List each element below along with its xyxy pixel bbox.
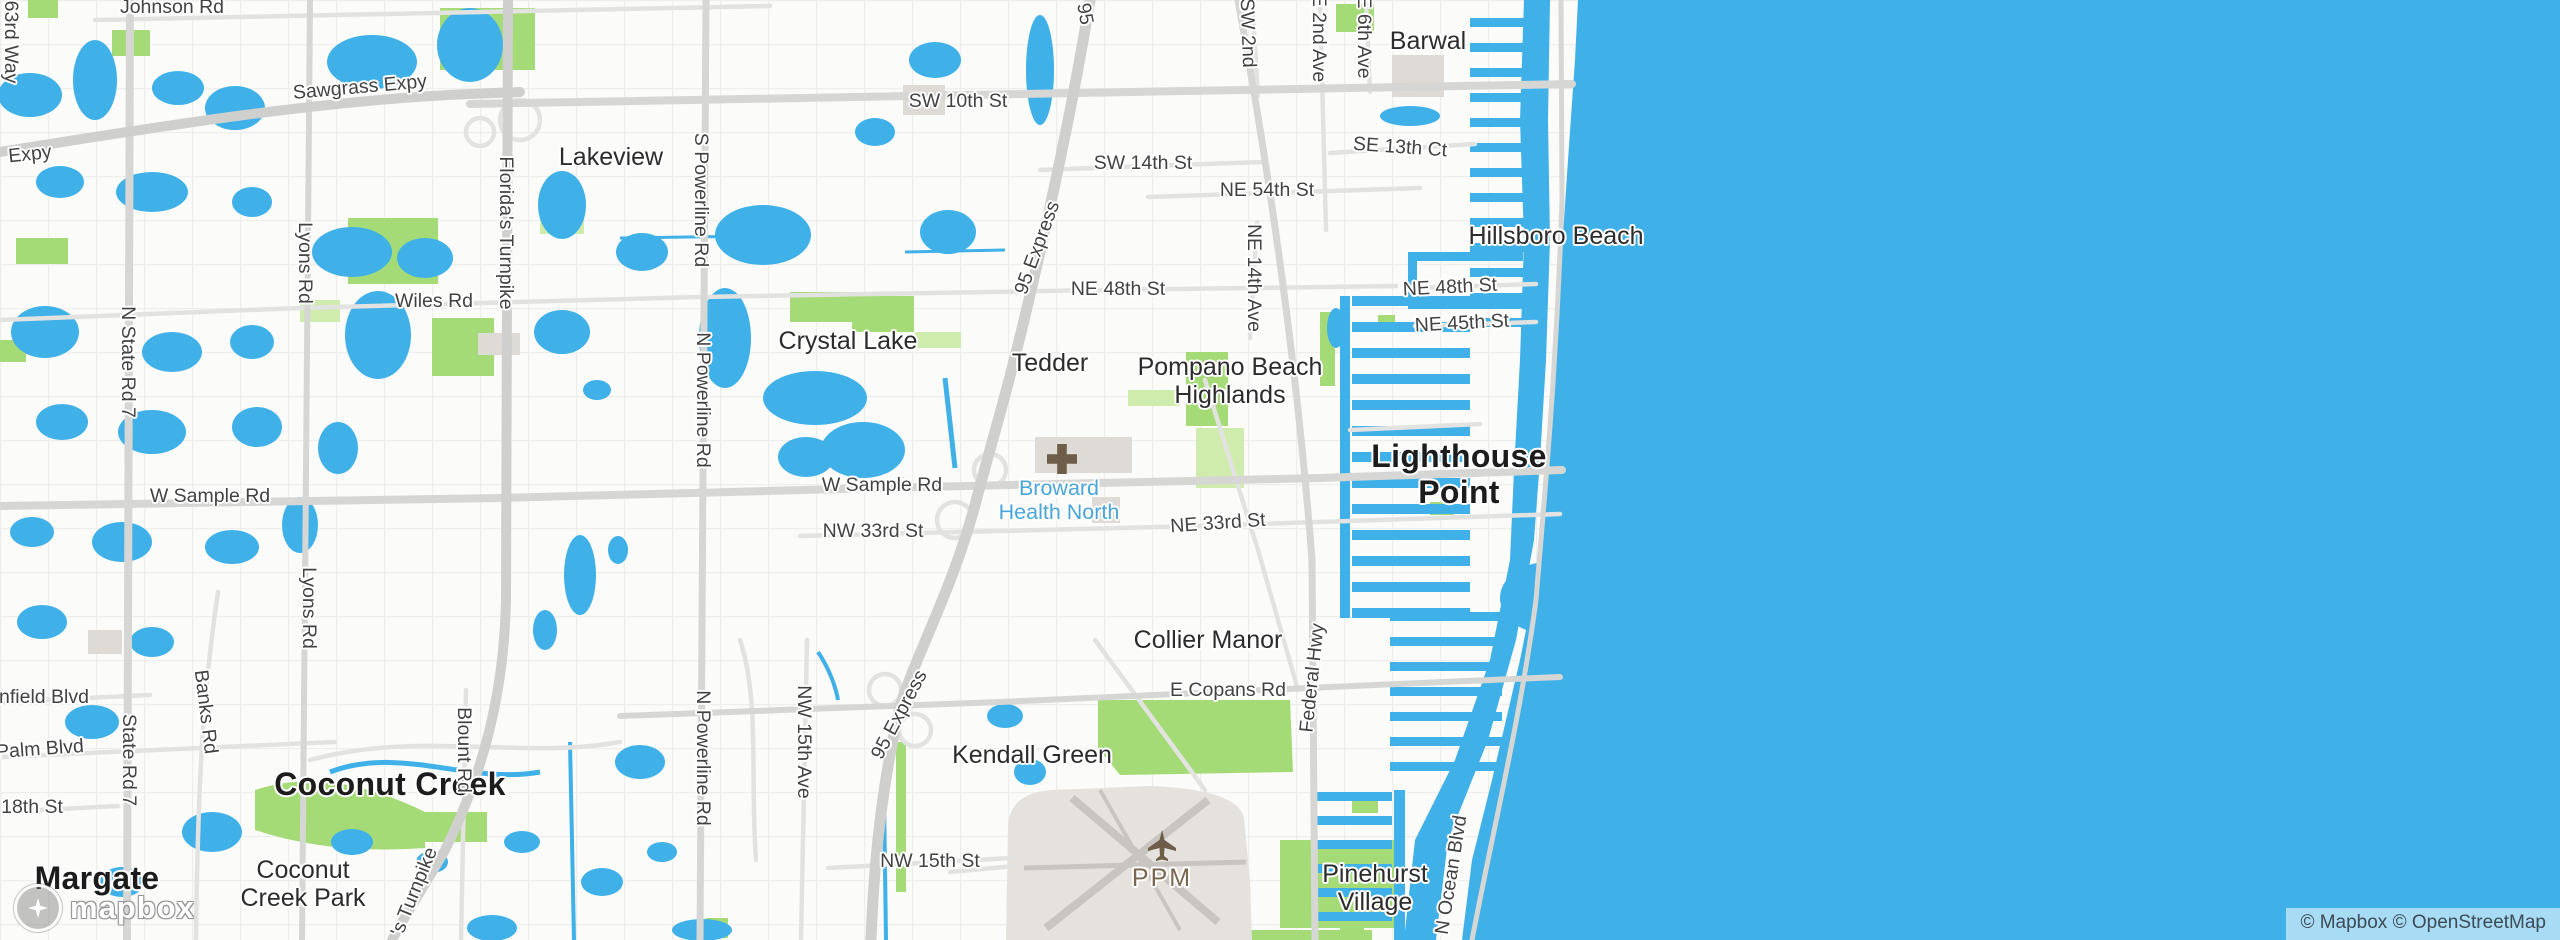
map-label-lyons-rd: Lyons Rd <box>297 567 319 649</box>
map-label-95: 95 <box>1071 1 1096 26</box>
map-label-ne-48th-st: NE 48th St <box>1402 275 1497 302</box>
map-label-95-express: 95 Express <box>867 667 932 763</box>
map-label-ne-45th-st: NE 45th St <box>1414 311 1509 338</box>
map-label-n-ocean-blvd: N Ocean Blvd <box>1432 814 1472 936</box>
map-label-s-turnpike: 's Turnpike <box>387 844 442 939</box>
map-label-ne-14th-ave: NE 14th Ave <box>1242 224 1264 332</box>
mapbox-logo-text: mapbox <box>70 890 195 926</box>
map-label-blount-rd: Blount Rd <box>452 707 474 793</box>
map-label-ne-54th-st: NE 54th St <box>1220 180 1314 202</box>
map-label-johnson-rd: Johnson Rd <box>120 0 224 19</box>
map-label-sw-2nd: SW 2nd <box>1235 0 1259 68</box>
map-label-63rd-way: 63rd Way <box>0 1 21 84</box>
map-label-barwal: Barwal <box>1390 27 1466 55</box>
map-label-crystal-lake: Crystal Lake <box>779 327 918 355</box>
map-label-sw-10th-st: SW 10th St <box>909 91 1008 113</box>
mapbox-logo[interactable]: mapbox <box>14 884 195 932</box>
map-label-n-state-rd-7: N State Rd 7 <box>116 306 138 418</box>
attribution-text: © Mapbox © OpenStreetMap <box>2300 912 2546 933</box>
map-label-nw-15th-ave: NW 15th Ave <box>792 685 814 798</box>
map-labels-layer: MargateCoconut CreekLighthouse PointBarw… <box>0 0 2560 940</box>
map-label-coconut-creek: Coconut Creek <box>274 767 506 803</box>
map-label-w-sample-rd: W Sample Rd <box>150 486 270 508</box>
map-label-e-copans-rd: E Copans Rd <box>1170 680 1286 702</box>
map-label-sw-14th-st: SW 14th St <box>1094 153 1193 175</box>
map-label-pinehurst-village: Pinehurst Village <box>1322 860 1428 916</box>
compass-star-icon <box>28 898 48 918</box>
map-label-tedder: Tedder <box>1012 349 1088 377</box>
map-label-w-sample-rd: W Sample Rd <box>822 475 942 497</box>
map-label-s-powerline-rd: S Powerline Rd <box>689 133 711 267</box>
map-label-banks-rd: Banks Rd <box>189 669 221 756</box>
map-label-coconut-creek-park: Coconut Creek Park <box>240 856 365 912</box>
map-attribution[interactable]: © Mapbox © OpenStreetMap <box>2286 908 2560 940</box>
map-label-ne-48th-st: NE 48th St <box>1071 279 1165 301</box>
hospital-icon <box>1047 444 1077 474</box>
map-label-federal-hwy: Federal Hwy <box>1296 622 1329 733</box>
map-label-pompano-beach-highlands: Pompano Beach Highlands <box>1138 353 1323 409</box>
map-label-broward-health-north: Broward Health North <box>999 476 1120 524</box>
map-canvas[interactable]: MargateCoconut CreekLighthouse PointBarw… <box>0 0 2560 940</box>
map-label-expy: Expy <box>7 142 52 168</box>
map-label-palm-blvd: Palm Blvd <box>0 736 85 764</box>
map-label-ne-33rd-st: NE 33rd St <box>1170 510 1267 538</box>
map-label-nw-15th-st: NW 15th St <box>880 851 980 873</box>
map-label-hillsboro-beach: Hillsboro Beach <box>1468 222 1643 250</box>
map-label-nfield-blvd: nfield Blvd <box>0 687 89 709</box>
map-label-se-13th-ct: SE 13th Ct <box>1352 134 1448 162</box>
map-label-ppm: PPM <box>1132 864 1192 892</box>
airplane-icon <box>1145 828 1179 862</box>
map-label-n-powerline-rd: N Powerline Rd <box>691 690 713 825</box>
map-label-wiles-rd: Wiles Rd <box>395 291 473 313</box>
map-label-florida-s-turnpike: Florida's Turnpike <box>494 156 516 309</box>
map-label-collier-manor: Collier Manor <box>1134 626 1283 654</box>
map-label-95-express: 95 Express <box>1011 198 1065 297</box>
map-label-sawgrass-expy: Sawgrass Expy <box>292 71 428 104</box>
map-label-kendall-green: Kendall Green <box>952 741 1112 769</box>
map-label-lighthouse-point: Lighthouse Point <box>1371 439 1546 511</box>
map-label-18th-st: 18th St <box>1 797 63 819</box>
map-label-nw-33rd-st: NW 33rd St <box>823 521 924 543</box>
map-label-state-rd-7: State Rd 7 <box>117 714 139 806</box>
map-label-e-2nd-ave: E 2nd Ave <box>1307 0 1329 82</box>
map-label-e-6th-ave: E 6th Ave <box>1352 0 1374 79</box>
map-label-lakeview: Lakeview <box>559 143 663 171</box>
map-label-lyons-rd: Lyons Rd <box>293 222 315 304</box>
map-label-n-powerline-rd: N Powerline Rd <box>691 332 713 467</box>
mapbox-logo-icon <box>14 884 62 932</box>
